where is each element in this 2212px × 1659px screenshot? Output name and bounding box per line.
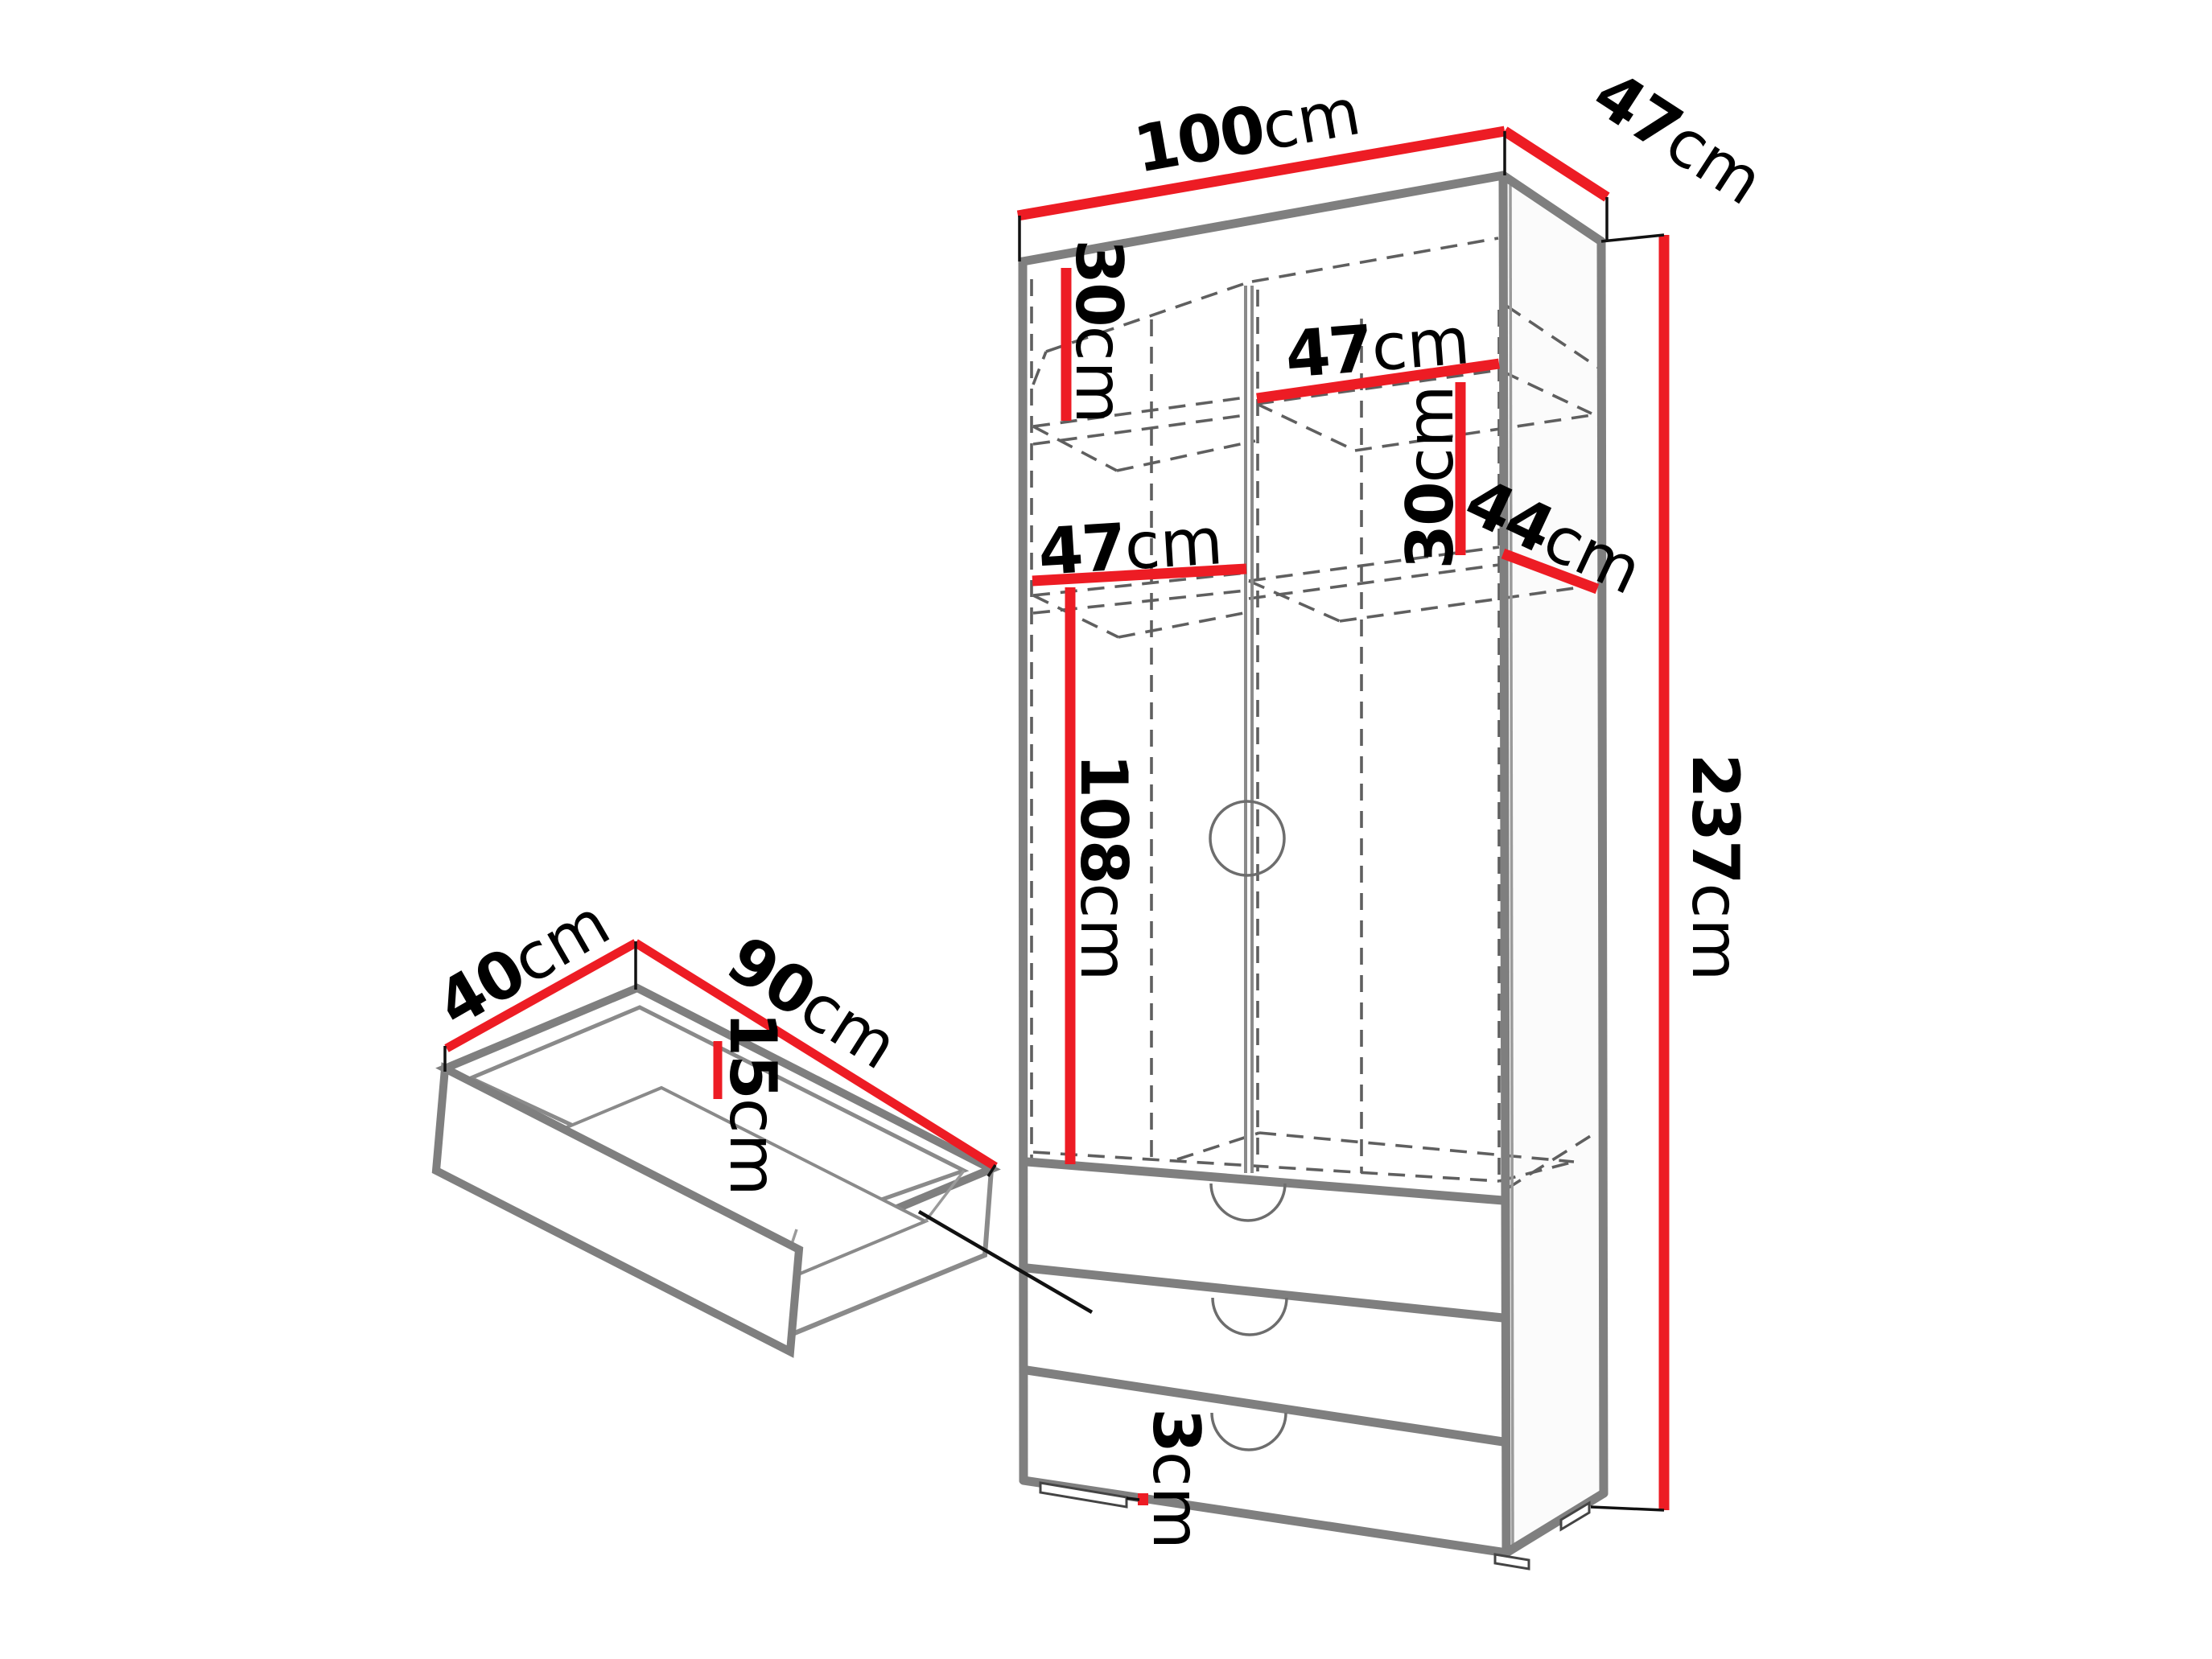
back-right-edge xyxy=(1601,241,1604,1493)
dim-label-top-depth: 47cm xyxy=(1581,56,1777,220)
dim-label-upper-left-height: 30cm xyxy=(1062,239,1137,423)
wardrobe-dimension-diagram: 100cm 47cm 30cm 47cm 30cm 44cm 47cm 108c… xyxy=(0,0,2212,1659)
dim-label-mid-left-height: 108cm xyxy=(1067,754,1142,982)
foot-right-front xyxy=(1495,1554,1529,1569)
cabinet-side-face xyxy=(1503,175,1604,1553)
dim-label-total-height: 237cm xyxy=(1679,754,1753,982)
left-edge xyxy=(1023,261,1024,1480)
diagram-canvas: 100cm 47cm 30cm 47cm 30cm 44cm 47cm 108c… xyxy=(0,0,2212,1659)
dim-label-upper-right-width: 47cm xyxy=(1283,303,1473,393)
front-right-edge xyxy=(1503,175,1506,1553)
dim-label-mid-left-width: 47cm xyxy=(1036,504,1225,590)
dim-label-plinth-height: 3cm xyxy=(1139,1408,1214,1550)
dim-label-top-width: 100cm xyxy=(1129,74,1366,187)
dim-label-drawer-height: 15cm xyxy=(716,1011,791,1196)
dim-label-upper-right-height: 30cm xyxy=(1393,385,1468,569)
